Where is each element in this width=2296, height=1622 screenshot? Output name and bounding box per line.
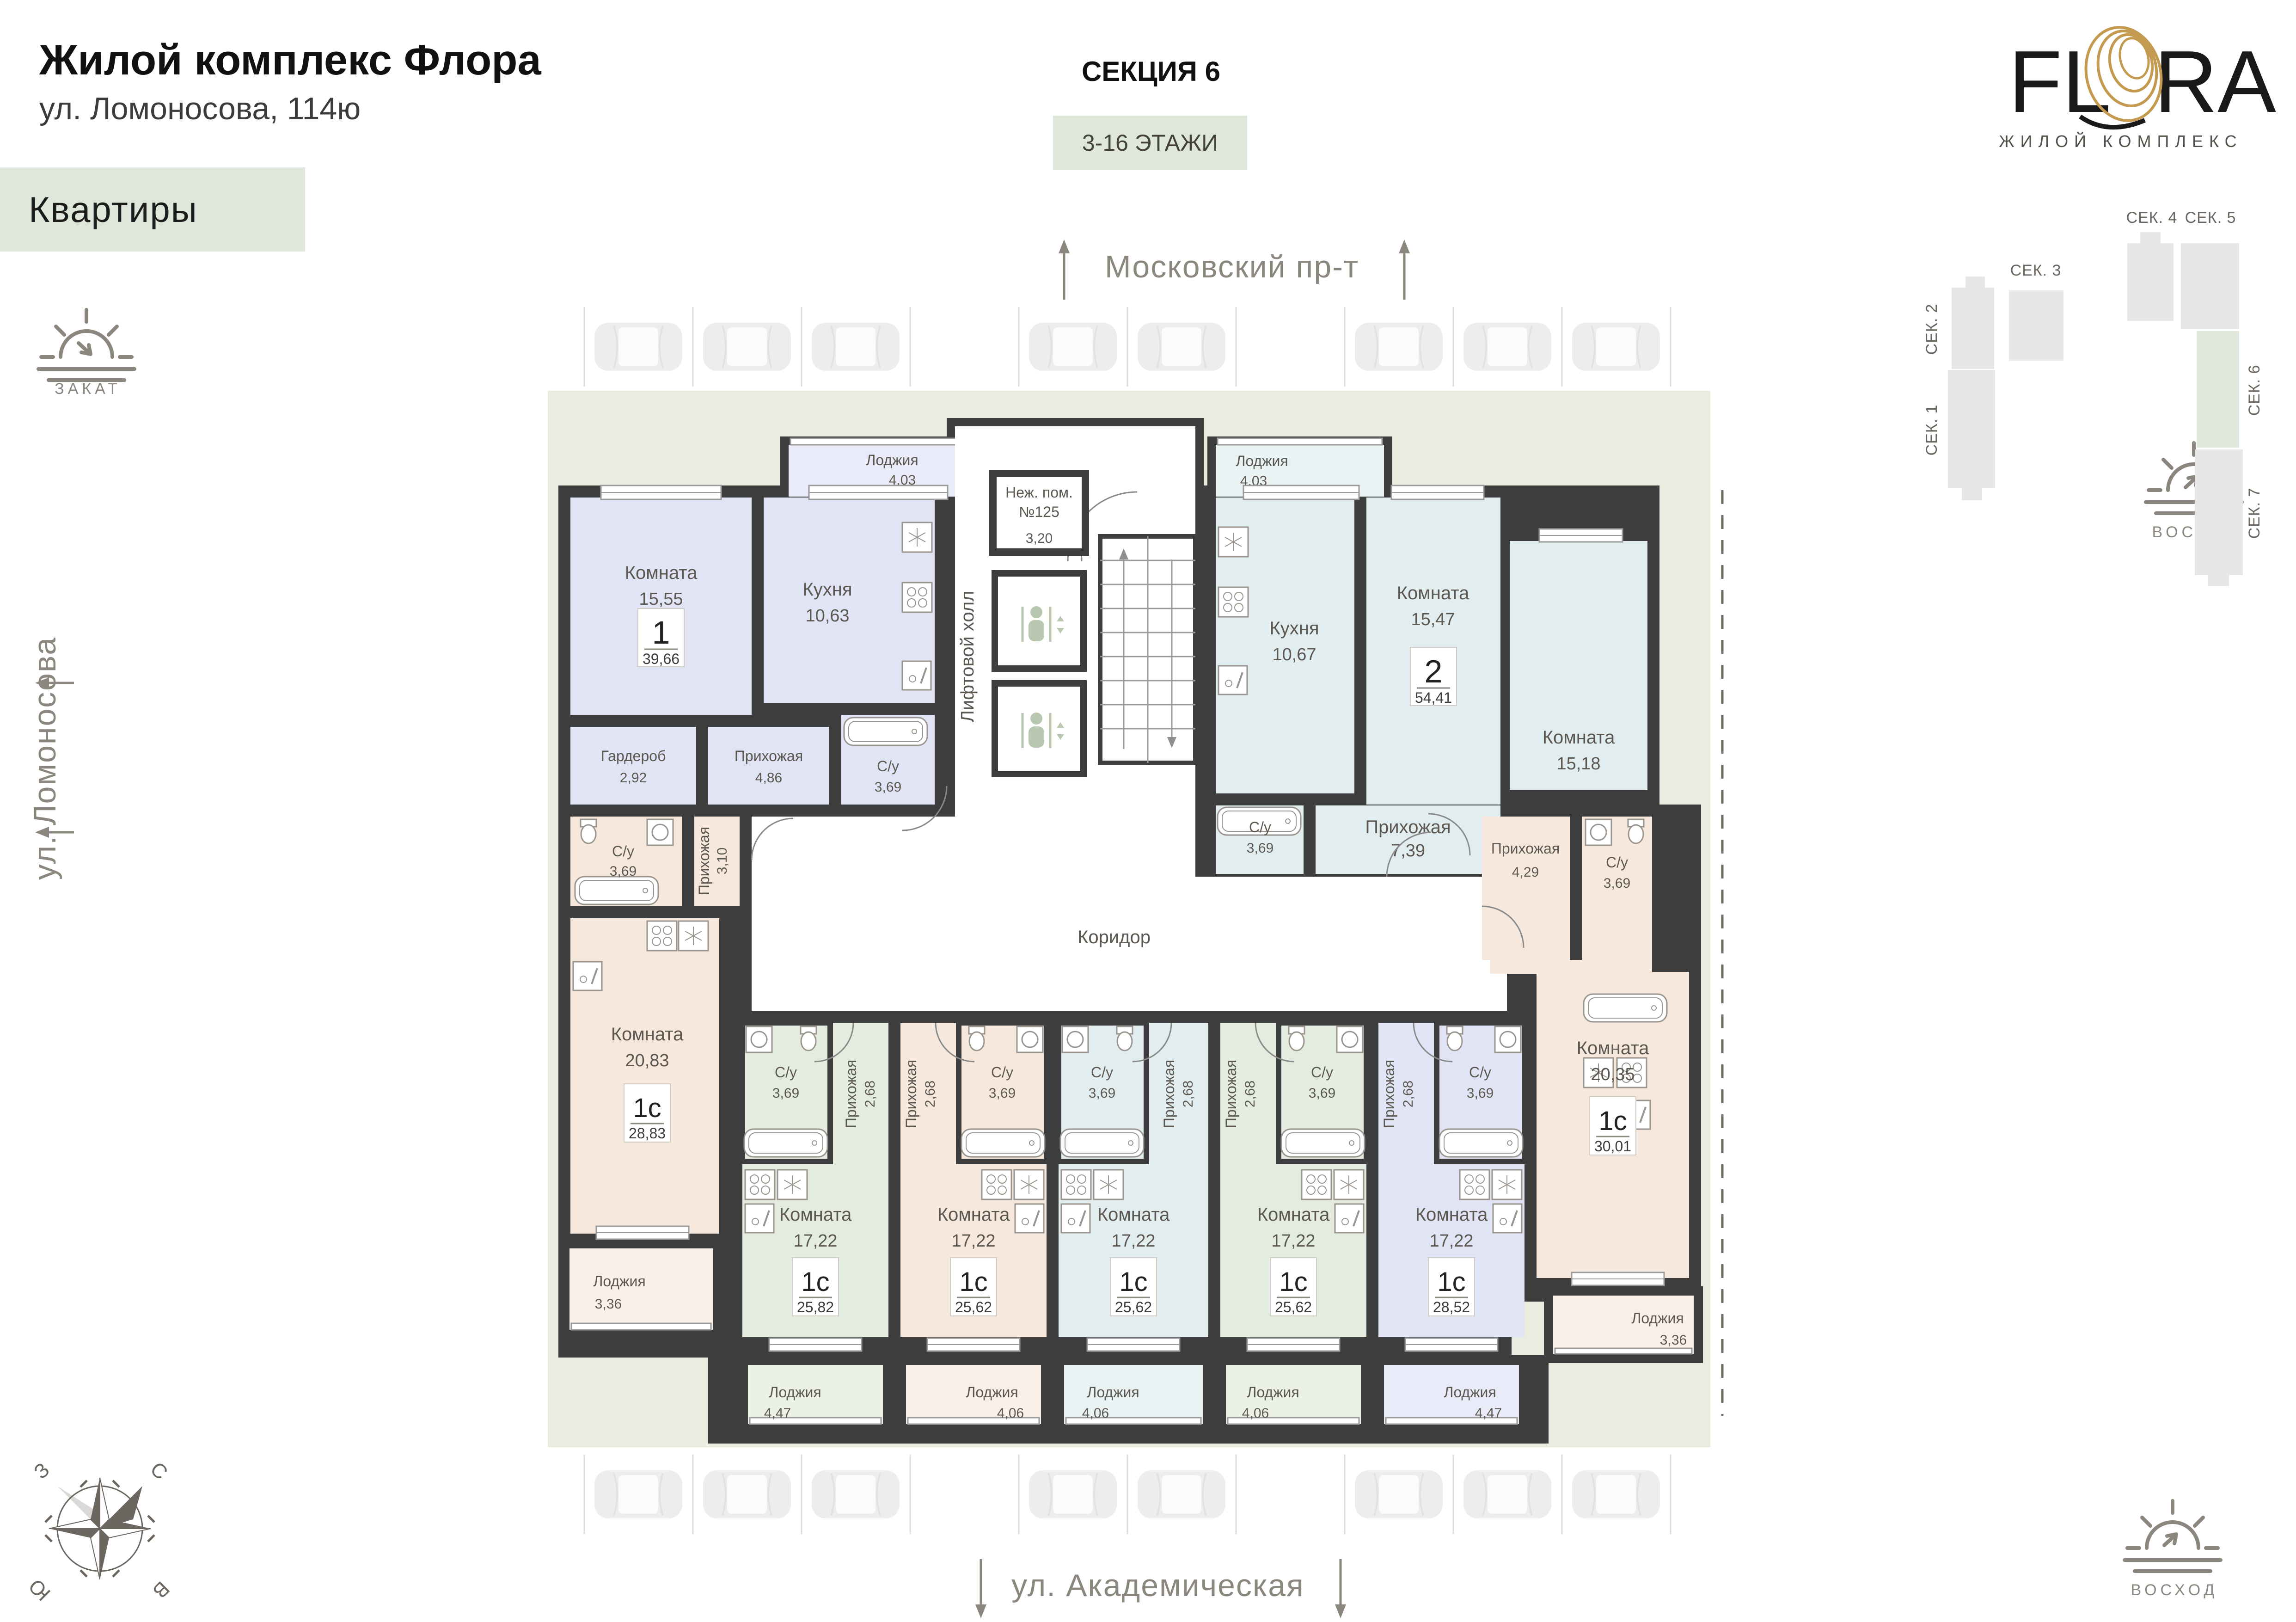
svg-text:Лоджия: Лоджия [1087,1384,1139,1401]
loggia: Лоджия 3,36 [569,1248,713,1330]
room-area: 15,18 [1556,754,1600,774]
apartment-type-plate: 1с 28,83 [624,1084,670,1142]
room-prihozhaya [1316,805,1500,874]
room-area: 2,68 [1243,1081,1258,1107]
apartment-type-plate: 2 54,41 [1410,647,1457,706]
page-title: Жилой комплекс Флора [39,36,541,85]
sunset-icon: ЗАКАТ [38,310,135,398]
elevator-hall-label: Лифтовой холл [957,591,978,723]
sunrise-icon-bottom: ВОСХОД [2125,1501,2221,1599]
sitemap-block [1965,276,1985,289]
svg-text:4,06: 4,06 [1242,1406,1269,1421]
sitemap-block-sek1[interactable] [1948,370,1995,488]
room-area: 3,69 [1247,841,1274,856]
street-left: ул. Ломоносова [27,637,74,880]
loggia: Лоджия 4,06 [1064,1365,1203,1424]
room-area: 3,10 [715,848,730,874]
room-area: 4,29 [1512,865,1539,880]
sitemap-block-sek3[interactable] [2009,290,2063,361]
room-area: 17,22 [1111,1231,1155,1251]
room-join [1490,960,1582,974]
svg-text:Лоджия: Лоджия [593,1273,645,1290]
sitemap-block-sek7[interactable] [2195,449,2243,575]
compass-east: В [148,1577,174,1603]
room-area: 3,69 [1467,1086,1494,1101]
compass-west: З [30,1458,54,1483]
room-area: 4,86 [755,770,782,786]
svg-text:Лоджия: Лоджия [769,1384,821,1401]
apartment-type-plate: 1с 25,82 [792,1258,839,1316]
room-label: Прихожая [735,748,803,764]
sitemap: СЕК. 4 СЕК. 5 СЕК. 3 СЕК. 2 СЕК. 1 СЕК. … [1923,209,2263,586]
room-komnata-2 [1510,541,1647,790]
sitemap-label-sek7: СЕК. 7 [2246,488,2263,539]
apartment-type-plate: 1с 28,52 [1428,1258,1475,1316]
parking-row-bottom [584,1455,1671,1534]
room-area: 17,22 [951,1231,995,1251]
room-area: 15,55 [639,590,683,609]
section-title: СЕКЦИЯ 6 [1008,55,1294,87]
svg-text:Московский пр-т: Московский пр-т [1105,249,1359,284]
non-residential-number: №125 [1019,504,1059,520]
room-area: 3,69 [875,780,901,795]
room-area: 7,39 [1391,841,1425,860]
apartment-type-plate: 1с 25,62 [1110,1258,1157,1316]
room-label: Комната [779,1204,852,1225]
car-icon [1572,323,1660,371]
compass-rose: З С Ю В [24,1457,174,1605]
room-label: С/у [1091,1064,1113,1081]
svg-text:4,06: 4,06 [1082,1406,1109,1421]
brand-tagline: ЖИЛОЙ КОМПЛЕКС [1999,131,2242,151]
room-label: С/у [1249,819,1271,836]
car-icon [812,323,900,371]
svg-text:1с: 1с [1437,1267,1465,1297]
room-label: С/у [991,1064,1013,1081]
staircase [1100,536,1195,763]
svg-text:25,62: 25,62 [1275,1299,1312,1315]
car-icon [1355,323,1443,371]
svg-text:4,47: 4,47 [1475,1406,1502,1421]
loggia: Лоджия 4,06 [906,1365,1041,1424]
svg-text:25,82: 25,82 [797,1299,834,1315]
car-icon [703,323,791,371]
room-label: Прихожая [843,1060,859,1128]
parking-row-top [584,307,1671,387]
non-residential-area: 3,20 [1026,531,1053,546]
loggia: Лоджия 4,47 [748,1365,883,1424]
room-area: 3,69 [772,1086,799,1101]
svg-text:1с: 1с [801,1267,829,1297]
car-icon [1029,1470,1117,1518]
building-core: Неж. пом. №125 3,20 Лифтовой холл [955,426,1195,877]
room-area: 15,47 [1411,610,1455,629]
room-area: 3,69 [1604,876,1630,891]
svg-text:1с: 1с [1119,1267,1147,1297]
brand-name-right: RA [2154,33,2276,131]
brand-name-left: FL [2008,33,2111,131]
room-label: Прихожая [1365,817,1451,837]
brand-logo: FL RA ЖИЛОЙ КОМПЛЕКС [1999,19,2276,151]
sitemap-block-sek5[interactable] [2181,243,2239,329]
room-label: С/у [1606,854,1628,871]
svg-text:4,06: 4,06 [997,1406,1024,1421]
floors-badge-text: 3-16 ЭТАЖИ [1082,129,1218,156]
room-label: Комната [1543,727,1615,748]
room-label: Комната [1097,1204,1170,1225]
room-area: 2,68 [863,1081,878,1107]
car-icon [1463,1470,1551,1518]
sitemap-label-sek3: СЕК. 3 [2010,262,2062,279]
room-label: Прихожая [1223,1060,1239,1128]
room-area: 17,22 [1429,1231,1473,1251]
svg-text:1с: 1с [1279,1267,1307,1297]
room-label: Прихожая [1161,1060,1177,1128]
sitemap-block [1962,488,1982,500]
room-area: 20,35 [1591,1065,1635,1084]
car-icon [1463,323,1551,371]
svg-text:Лоджия: Лоджия [1247,1384,1299,1401]
room-area: 20,83 [625,1051,669,1070]
svg-text:4,47: 4,47 [764,1406,791,1421]
svg-text:1с: 1с [1598,1106,1627,1136]
room-label: Гардероб [601,748,666,764]
room-label: С/у [775,1064,797,1081]
compass-north: С [146,1457,171,1484]
svg-text:Лоджия: Лоджия [966,1384,1018,1401]
car-icon [594,1470,682,1518]
room-area: 10,67 [1272,645,1316,664]
compass-south: Ю [24,1574,55,1605]
room-label: Комната [1257,1204,1330,1225]
svg-text:30,01: 30,01 [1594,1138,1631,1155]
car-icon [1572,1470,1660,1518]
apartments-tab-label: Квартиры [29,189,198,231]
room-label: Прихожая [1491,840,1560,857]
svg-text:ул. Академическая: ул. Академическая [1011,1568,1304,1603]
page-address: ул. Ломоносова, 114ю [39,91,361,127]
car-icon [1029,323,1117,371]
room-area: 17,22 [1271,1231,1315,1251]
sunrise-label: ВОСХОД [2131,1581,2218,1599]
room-label: Лоджия [1236,453,1288,469]
room-area: 3,69 [610,864,637,879]
svg-text:25,62: 25,62 [1115,1299,1152,1315]
svg-text:28,52: 28,52 [1433,1299,1470,1315]
room-label: Комната [937,1204,1010,1225]
apartment-type-plate: 1с 25,62 [950,1258,997,1316]
svg-text:Лоджия: Лоджия [1631,1310,1684,1327]
svg-text:25,62: 25,62 [955,1299,992,1315]
car-icon [812,1470,900,1518]
room-area: 2,68 [923,1081,938,1107]
loggia: Лоджия 3,36 [1553,1296,1694,1354]
room-prihozhaya [708,727,829,805]
svg-text:1с: 1с [959,1267,987,1297]
room-label: Прихожая [696,827,712,895]
room-prihozhaya [1482,817,1570,960]
svg-text:1: 1 [652,614,670,651]
svg-text:ул. Ломоносова: ул. Ломоносова [27,637,62,880]
room-label: Комната [625,563,698,583]
apartment-type-plate: 1с 25,62 [1270,1258,1316,1316]
floor-plan-canvas: Лоджия 4,03 Комната 15,55 Кухня 10,63 Га… [0,0,2296,1622]
sunset-label: ЗАКАТ [55,380,121,398]
room-area: 3,69 [1089,1086,1115,1101]
room-garderob [570,727,696,805]
street-bottom: ул. Академическая [975,1559,1346,1618]
corridor-label: Коридор [1078,927,1151,947]
page: Лоджия 4,03 Комната 15,55 Кухня 10,63 Га… [0,0,2296,1622]
room-area: 2,68 [1181,1081,1196,1107]
sitemap-label-sek4: СЕК. 4 [2126,209,2178,227]
svg-text:2: 2 [1425,653,1443,689]
room-label: Комната [611,1024,684,1044]
room-area: 2,92 [620,770,647,786]
room-label: Комната [1397,583,1469,603]
svg-text:3,36: 3,36 [595,1296,622,1312]
car-icon [703,1470,791,1518]
car-icon [1138,1470,1225,1518]
loggia: Лоджия 4,47 [1384,1365,1519,1424]
room-label: Комната [1415,1204,1488,1225]
svg-text:3,36: 3,36 [1660,1333,1687,1348]
car-icon [1138,323,1225,371]
sitemap-block [2208,575,2229,586]
sitemap-label-sek6: СЕК. 6 [2246,365,2263,416]
sitemap-label-sek2: СЕК. 2 [1923,304,1941,355]
svg-text:1с: 1с [633,1093,661,1123]
room-area: 17,22 [793,1231,837,1251]
sitemap-block [2140,232,2161,244]
room-label: Прихожая [1381,1060,1397,1128]
sitemap-block-sek2[interactable] [1952,288,1994,369]
room-label: С/у [1311,1064,1333,1081]
sitemap-block-sek6-current[interactable] [2197,331,2239,448]
room-label: С/у [1469,1064,1491,1081]
room-label: С/у [877,758,899,774]
non-residential-label: Неж. пом. [1005,484,1073,501]
svg-text:39,66: 39,66 [643,651,680,667]
car-icon [594,323,682,371]
room-label: Лоджия [866,452,918,468]
sitemap-label-sek1: СЕК. 1 [1923,405,1941,456]
apartments-tab[interactable]: Квартиры [0,167,305,252]
car-icon [1355,1470,1443,1518]
svg-text:Лоджия: Лоджия [1444,1384,1496,1401]
apartment-type-plate: 1с 30,01 [1590,1097,1636,1155]
svg-text:28,83: 28,83 [629,1125,666,1142]
room-label: Прихожая [903,1060,919,1128]
svg-text:54,41: 54,41 [1415,689,1452,706]
room-label: Комната [1577,1038,1649,1058]
room-area: 3,69 [1309,1086,1335,1101]
sitemap-block-sek4[interactable] [2127,243,2174,321]
street-top: Московский пр-т [1059,240,1410,300]
room-area: 2,68 [1401,1081,1416,1107]
sitemap-label-sek5: СЕК. 5 [2185,209,2236,227]
apartment-type-plate: 1 39,66 [638,608,684,667]
floors-badge: 3-16 ЭТАЖИ [1053,116,1247,170]
room-label: Кухня [1269,618,1319,639]
room-label: С/у [612,843,634,860]
room-label: Кухня [802,579,852,600]
room-area: 3,69 [989,1086,1016,1101]
room-area: 10,63 [805,606,849,626]
loggia: Лоджия 4,06 [1226,1365,1361,1424]
